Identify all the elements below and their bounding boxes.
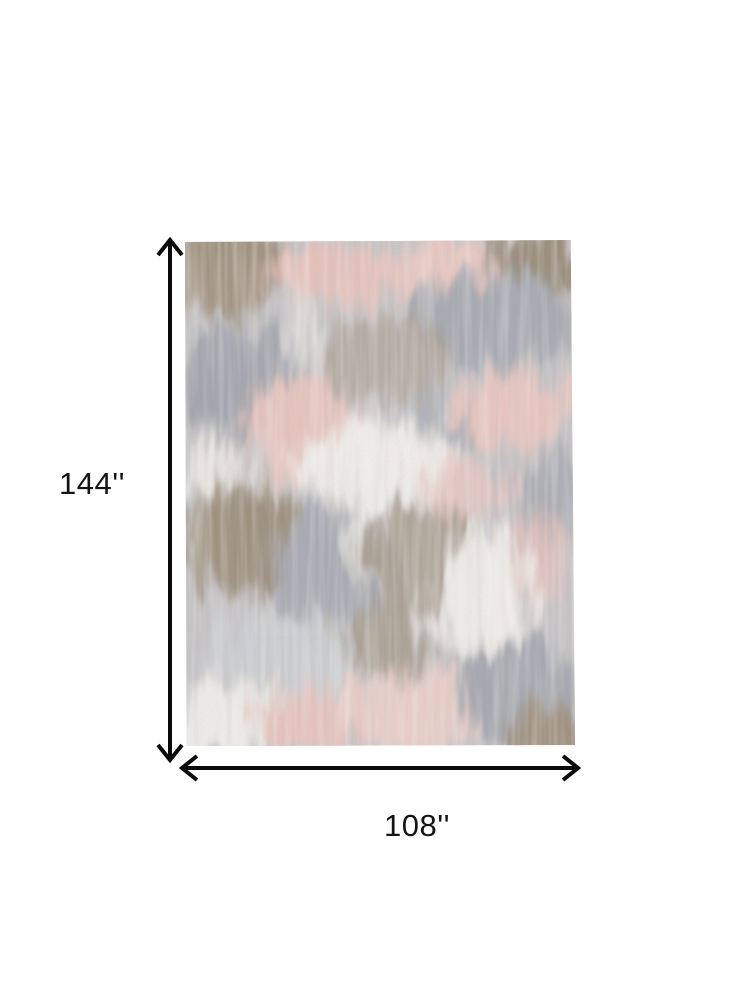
- height-double-arrow-icon: [148, 230, 192, 770]
- width-double-arrow-icon: [174, 746, 586, 790]
- rug-texture: [185, 240, 575, 746]
- rug-image: [185, 240, 575, 746]
- product-dimension-diagram: 144'' 108'': [0, 0, 754, 1000]
- width-dimension-label: 108'': [367, 808, 467, 844]
- height-dimension-label: 144'': [42, 466, 142, 502]
